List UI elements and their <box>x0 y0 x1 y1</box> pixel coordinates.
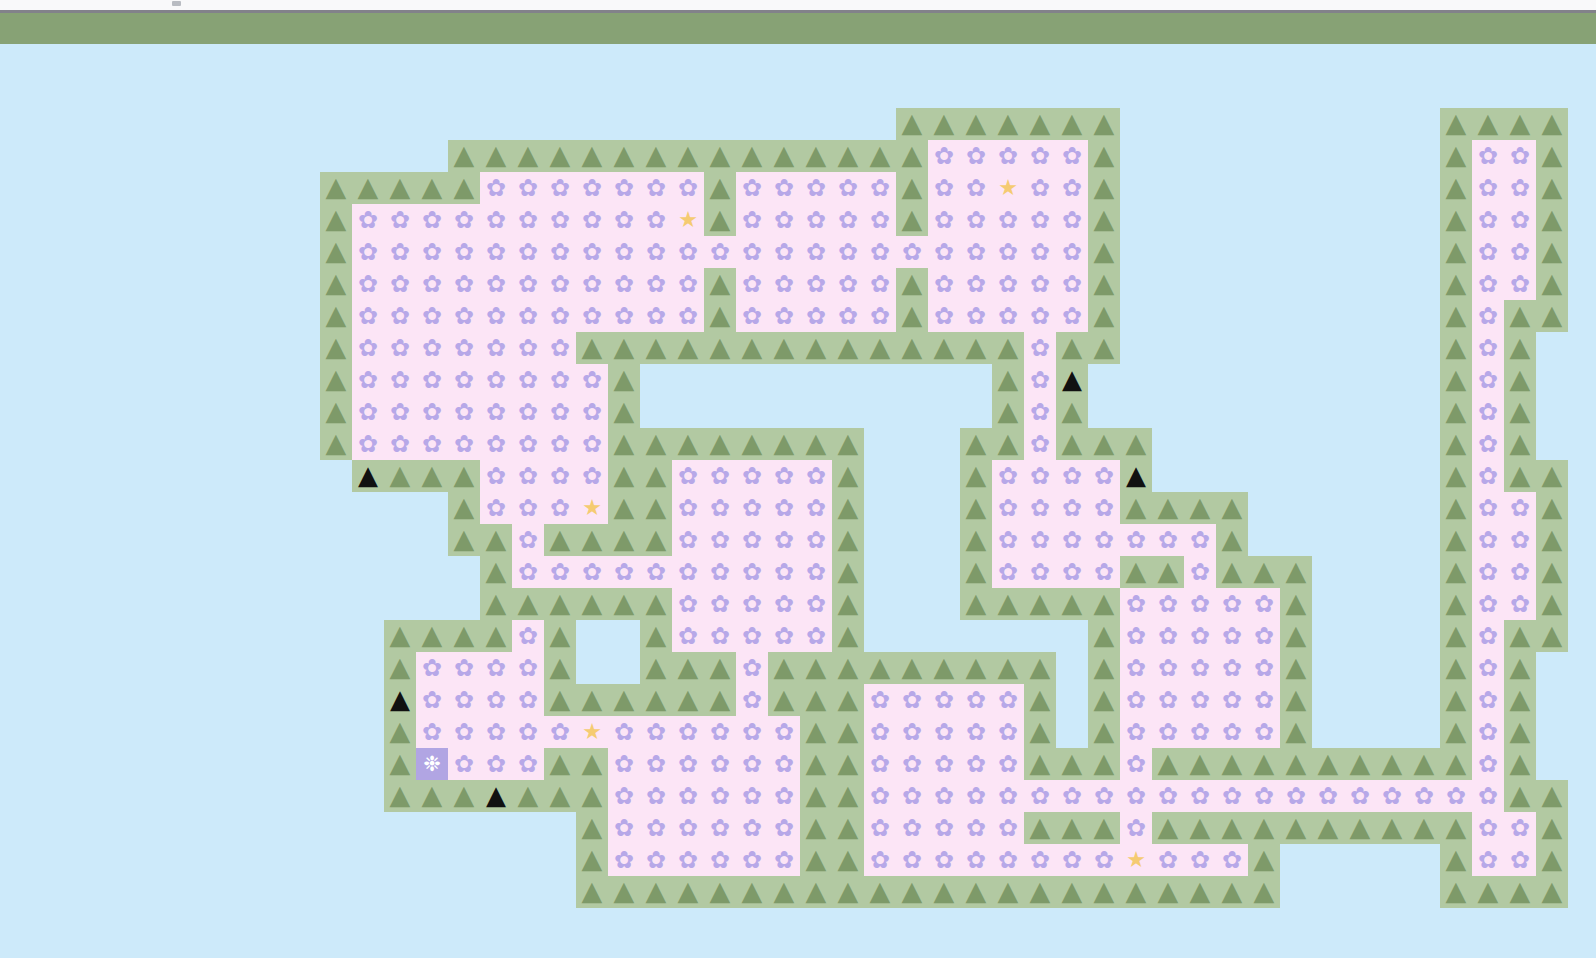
flower-icon: ✿ <box>998 560 1018 584</box>
flower-tile: ✿ <box>384 332 416 364</box>
tree-icon: ▲ <box>1094 749 1115 776</box>
flower-icon: ✿ <box>1190 528 1210 552</box>
flower-icon: ✿ <box>390 432 410 456</box>
flower-icon: ✿ <box>742 784 762 808</box>
tree-icon: ▲ <box>1158 749 1179 776</box>
flower-icon: ✿ <box>710 784 730 808</box>
flower-icon: ✿ <box>422 432 442 456</box>
flower-tile: ✿ <box>1376 780 1408 812</box>
star-icon: ★ <box>582 721 602 743</box>
flower-tile: ✿ <box>1056 460 1088 492</box>
tree-tile: ▲ <box>800 812 832 844</box>
flower-icon: ✿ <box>614 176 634 200</box>
black-triangle-tile: ▲ <box>1056 364 1088 396</box>
flower-icon: ✿ <box>454 208 474 232</box>
tree-tile: ▲ <box>1024 684 1056 716</box>
flower-icon: ✿ <box>934 784 954 808</box>
tree-icon: ▲ <box>1542 301 1563 328</box>
flower-icon: ✿ <box>422 208 442 232</box>
flower-tile: ✿ <box>1472 364 1504 396</box>
flower-tile: ✿ <box>1088 844 1120 876</box>
flower-tile: ✿ <box>480 716 512 748</box>
flower-tile: ✿ <box>800 236 832 268</box>
tree-icon: ▲ <box>902 301 923 328</box>
tree-icon: ▲ <box>1414 813 1435 840</box>
flower-icon: ✿ <box>1478 784 1498 808</box>
tree-tile: ▲ <box>704 332 736 364</box>
tree-tile: ▲ <box>928 332 960 364</box>
star-icon: ★ <box>582 497 602 519</box>
tree-icon: ▲ <box>486 557 507 584</box>
tree-tile: ▲ <box>1216 492 1248 524</box>
flower-icon: ✿ <box>422 368 442 392</box>
tree-tile: ▲ <box>480 524 512 556</box>
black-triangle-icon: ▲ <box>358 462 378 488</box>
flower-tile: ✿ <box>512 172 544 204</box>
tree-tile: ▲ <box>704 876 736 908</box>
tree-icon: ▲ <box>326 173 347 200</box>
tree-tile: ▲ <box>1440 396 1472 428</box>
flower-tile: ✿ <box>1248 716 1280 748</box>
flower-tile: ✿ <box>576 396 608 428</box>
flower-tile: ✿ <box>768 236 800 268</box>
flower-tile: ✿ <box>864 780 896 812</box>
tree-tile: ▲ <box>800 748 832 780</box>
tree-icon: ▲ <box>454 525 475 552</box>
tree-icon: ▲ <box>1062 429 1083 456</box>
flower-icon: ✿ <box>998 304 1018 328</box>
tree-tile: ▲ <box>1504 332 1536 364</box>
flower-icon: ✿ <box>678 848 698 872</box>
flower-icon: ✿ <box>1190 592 1210 616</box>
flower-icon: ✿ <box>870 688 890 712</box>
tree-tile: ▲ <box>384 716 416 748</box>
flower-tile: ✿ <box>960 300 992 332</box>
flower-tile: ✿ <box>1216 684 1248 716</box>
flower-icon: ✿ <box>358 304 378 328</box>
tree-tile: ▲ <box>672 876 704 908</box>
flower-icon: ✿ <box>998 272 1018 296</box>
flower-icon: ✿ <box>1254 688 1274 712</box>
flower-icon: ✿ <box>518 688 538 712</box>
tree-tile: ▲ <box>1504 364 1536 396</box>
tree-tile: ▲ <box>640 876 672 908</box>
flower-tile: ✿ <box>704 556 736 588</box>
tree-icon: ▲ <box>838 781 859 808</box>
flower-tile: ✿ <box>480 300 512 332</box>
tree-tile: ▲ <box>1440 716 1472 748</box>
tree-tile: ▲ <box>1440 364 1472 396</box>
flower-icon: ✿ <box>1062 176 1082 200</box>
tree-tile: ▲ <box>608 428 640 460</box>
tree-tile: ▲ <box>800 140 832 172</box>
flower-icon: ✿ <box>518 496 538 520</box>
flower-tile: ✿ <box>992 780 1024 812</box>
flower-icon: ✿ <box>422 400 442 424</box>
tree-icon: ▲ <box>1094 877 1115 904</box>
tree-tile: ▲ <box>992 652 1024 684</box>
tree-tile: ▲ <box>992 108 1024 140</box>
tree-tile: ▲ <box>1536 876 1568 908</box>
flower-tile: ✿ <box>928 172 960 204</box>
tree-icon: ▲ <box>454 621 475 648</box>
tree-icon: ▲ <box>838 685 859 712</box>
tree-tile: ▲ <box>1536 524 1568 556</box>
flower-icon: ✿ <box>486 240 506 264</box>
tree-icon: ▲ <box>1542 141 1563 168</box>
tree-tile: ▲ <box>1536 172 1568 204</box>
flower-tile: ✿ <box>1216 620 1248 652</box>
tree-tile: ▲ <box>1536 812 1568 844</box>
star-icon: ★ <box>998 177 1018 199</box>
flower-tile: ✿ <box>736 268 768 300</box>
star-tile: ★ <box>576 716 608 748</box>
tree-icon: ▲ <box>806 781 827 808</box>
flower-icon: ✿ <box>486 496 506 520</box>
tree-icon: ▲ <box>806 685 827 712</box>
flower-tile: ✿ <box>768 300 800 332</box>
flower-tile: ✿ <box>352 396 384 428</box>
flower-tile: ✿ <box>800 556 832 588</box>
flower-tile: ✿ <box>1504 844 1536 876</box>
tree-icon: ▲ <box>358 173 379 200</box>
flower-tile: ✿ <box>1120 716 1152 748</box>
flower-icon: ✿ <box>1190 624 1210 648</box>
flower-tile: ✿ <box>1472 812 1504 844</box>
tree-tile: ▲ <box>1152 876 1184 908</box>
flower-icon: ✿ <box>710 816 730 840</box>
tree-tile: ▲ <box>1088 812 1120 844</box>
tree-tile: ▲ <box>1248 556 1280 588</box>
tree-icon: ▲ <box>1510 333 1531 360</box>
flower-icon: ✿ <box>774 528 794 552</box>
flower-tile: ✿ <box>768 460 800 492</box>
flower-tile: ✿ <box>384 364 416 396</box>
tree-tile: ▲ <box>1504 300 1536 332</box>
tree-tile: ▲ <box>576 876 608 908</box>
flower-tile: ✿ <box>1504 556 1536 588</box>
tree-tile: ▲ <box>960 652 992 684</box>
flower-tile: ✿ <box>768 780 800 812</box>
flower-tile: ✿ <box>416 716 448 748</box>
black-triangle-icon: ▲ <box>1126 462 1146 488</box>
flower-icon: ✿ <box>998 752 1018 776</box>
flower-tile: ✿ <box>384 204 416 236</box>
flower-tile: ✿ <box>1248 684 1280 716</box>
flower-tile: ✿ <box>736 716 768 748</box>
flower-tile: ✿ <box>1024 460 1056 492</box>
flower-icon: ✿ <box>1126 656 1146 680</box>
star-tile: ★ <box>992 172 1024 204</box>
tree-tile: ▲ <box>608 364 640 396</box>
flower-tile: ✿ <box>640 268 672 300</box>
flower-tile: ✿ <box>1504 812 1536 844</box>
flower-icon: ✿ <box>614 272 634 296</box>
tree-icon: ▲ <box>806 333 827 360</box>
tree-icon: ▲ <box>550 141 571 168</box>
flower-icon: ✿ <box>998 720 1018 744</box>
flower-tile: ✿ <box>544 492 576 524</box>
tree-icon: ▲ <box>550 589 571 616</box>
tree-icon: ▲ <box>550 781 571 808</box>
tree-icon: ▲ <box>582 813 603 840</box>
game-board[interactable]: ▲▲▲▲▲▲▲▲▲▲▲▲▲▲▲▲▲▲▲▲▲▲▲▲▲▲✿✿✿✿✿▲▲✿✿▲▲▲▲▲… <box>0 44 1596 958</box>
tree-icon: ▲ <box>1510 365 1531 392</box>
flower-tile: ✿ <box>1472 620 1504 652</box>
flower-icon: ✿ <box>870 752 890 776</box>
flower-tile: ✿ <box>736 460 768 492</box>
tree-tile: ▲ <box>1280 556 1312 588</box>
player-tile[interactable]: ❉ <box>416 748 448 780</box>
tree-tile: ▲ <box>992 588 1024 620</box>
flower-tile: ✿ <box>544 460 576 492</box>
flower-icon: ✿ <box>1478 592 1498 616</box>
flower-tile: ✿ <box>896 236 928 268</box>
tree-tile: ▲ <box>800 684 832 716</box>
tree-tile: ▲ <box>1536 588 1568 620</box>
flower-icon: ✿ <box>742 208 762 232</box>
flower-icon: ✿ <box>934 816 954 840</box>
flower-icon: ✿ <box>518 304 538 328</box>
flower-tile: ✿ <box>1184 524 1216 556</box>
flower-icon: ✿ <box>1158 848 1178 872</box>
tree-icon: ▲ <box>1510 461 1531 488</box>
flower-tile: ✿ <box>1504 268 1536 300</box>
tree-tile: ▲ <box>1280 684 1312 716</box>
flower-icon: ✿ <box>390 368 410 392</box>
tree-tile: ▲ <box>320 332 352 364</box>
flower-tile: ✿ <box>1024 140 1056 172</box>
flower-icon: ✿ <box>870 208 890 232</box>
flower-tile: ✿ <box>1248 620 1280 652</box>
tree-tile: ▲ <box>1408 812 1440 844</box>
flower-tile: ✿ <box>1472 524 1504 556</box>
tree-tile: ▲ <box>928 108 960 140</box>
tree-tile: ▲ <box>800 716 832 748</box>
tree-icon: ▲ <box>1030 813 1051 840</box>
flower-tile: ✿ <box>800 268 832 300</box>
flower-tile: ✿ <box>1216 716 1248 748</box>
flower-icon: ✿ <box>934 848 954 872</box>
tree-tile: ▲ <box>608 396 640 428</box>
flower-icon: ✿ <box>1062 848 1082 872</box>
flower-tile: ✿ <box>1024 556 1056 588</box>
flower-tile: ✿ <box>928 140 960 172</box>
flower-tile: ✿ <box>704 492 736 524</box>
flower-tile: ✿ <box>672 588 704 620</box>
flower-tile: ✿ <box>384 300 416 332</box>
tree-tile: ▲ <box>1504 876 1536 908</box>
black-triangle-tile: ▲ <box>352 460 384 492</box>
tree-tile: ▲ <box>448 492 480 524</box>
flower-icon: ✿ <box>582 176 602 200</box>
flower-tile: ✿ <box>448 748 480 780</box>
flower-tile: ✿ <box>512 428 544 460</box>
flower-icon: ✿ <box>582 208 602 232</box>
tree-tile: ▲ <box>800 876 832 908</box>
tree-icon: ▲ <box>390 749 411 776</box>
flower-tile: ✿ <box>608 204 640 236</box>
tree-icon: ▲ <box>870 141 891 168</box>
flower-icon: ✿ <box>518 624 538 648</box>
tree-tile: ▲ <box>1088 140 1120 172</box>
flower-icon: ✿ <box>1510 592 1530 616</box>
tree-tile: ▲ <box>992 364 1024 396</box>
tree-tile: ▲ <box>704 204 736 236</box>
tree-tile: ▲ <box>480 556 512 588</box>
flower-tile: ✿ <box>1152 588 1184 620</box>
tree-icon: ▲ <box>934 333 955 360</box>
tree-tile: ▲ <box>544 780 576 812</box>
tree-icon: ▲ <box>838 621 859 648</box>
flower-tile: ✿ <box>672 460 704 492</box>
flower-icon: ✿ <box>934 752 954 776</box>
flower-tile: ✿ <box>736 556 768 588</box>
tree-tile: ▲ <box>832 876 864 908</box>
tree-tile: ▲ <box>1504 748 1536 780</box>
tree-icon: ▲ <box>774 429 795 456</box>
flower-tile: ✿ <box>352 332 384 364</box>
flower-icon: ✿ <box>710 848 730 872</box>
flower-tile: ✿ <box>1472 460 1504 492</box>
black-triangle-tile: ▲ <box>384 684 416 716</box>
flower-tile: ✿ <box>640 236 672 268</box>
flower-icon: ✿ <box>1510 528 1530 552</box>
tree-icon: ▲ <box>678 685 699 712</box>
tree-icon: ▲ <box>1254 845 1275 872</box>
tree-tile: ▲ <box>1088 268 1120 300</box>
flower-icon: ✿ <box>550 240 570 264</box>
tree-tile: ▲ <box>960 556 992 588</box>
tree-tile: ▲ <box>576 844 608 876</box>
tree-tile: ▲ <box>640 428 672 460</box>
tree-tile: ▲ <box>1440 300 1472 332</box>
flower-icon: ✿ <box>518 656 538 680</box>
flower-icon: ✿ <box>582 272 602 296</box>
flower-icon: ✿ <box>1222 784 1242 808</box>
flower-icon: ✿ <box>1158 784 1178 808</box>
tree-tile: ▲ <box>1376 812 1408 844</box>
tree-tile: ▲ <box>672 332 704 364</box>
flower-icon: ✿ <box>678 176 698 200</box>
tree-tile: ▲ <box>320 172 352 204</box>
flower-tile: ✿ <box>928 204 960 236</box>
flower-icon: ✿ <box>966 752 986 776</box>
flower-tile: ✿ <box>704 588 736 620</box>
tree-tile: ▲ <box>960 332 992 364</box>
flower-tile: ✿ <box>896 844 928 876</box>
flower-icon: ✿ <box>742 720 762 744</box>
flower-icon: ✿ <box>422 304 442 328</box>
flower-icon: ✿ <box>678 752 698 776</box>
flower-tile: ✿ <box>704 780 736 812</box>
tree-icon: ▲ <box>1382 813 1403 840</box>
flower-tile: ✿ <box>640 204 672 236</box>
flower-icon: ✿ <box>1190 560 1210 584</box>
flower-tile: ✿ <box>640 556 672 588</box>
tree-icon: ▲ <box>646 333 667 360</box>
flower-tile: ✿ <box>576 556 608 588</box>
flower-tile: ✿ <box>1280 780 1312 812</box>
tree-icon: ▲ <box>550 749 571 776</box>
flower-icon: ✿ <box>518 272 538 296</box>
flower-icon: ✿ <box>966 272 986 296</box>
tree-tile: ▲ <box>1504 716 1536 748</box>
flower-icon: ✿ <box>454 272 474 296</box>
tree-tile: ▲ <box>832 492 864 524</box>
tree-tile: ▲ <box>832 332 864 364</box>
tree-icon: ▲ <box>1094 237 1115 264</box>
flower-icon: ✿ <box>774 272 794 296</box>
tree-icon: ▲ <box>1542 173 1563 200</box>
tree-icon: ▲ <box>1542 557 1563 584</box>
flower-tile: ✿ <box>1184 588 1216 620</box>
tree-tile: ▲ <box>704 652 736 684</box>
flower-tile: ✿ <box>1184 716 1216 748</box>
tree-tile: ▲ <box>608 524 640 556</box>
flower-tile: ✿ <box>1056 140 1088 172</box>
tree-icon: ▲ <box>998 877 1019 904</box>
flower-icon: ✿ <box>1062 144 1082 168</box>
flower-icon: ✿ <box>710 592 730 616</box>
tree-icon: ▲ <box>1094 205 1115 232</box>
flower-icon: ✿ <box>1062 528 1082 552</box>
tree-icon: ▲ <box>1190 877 1211 904</box>
tree-icon: ▲ <box>870 877 891 904</box>
tree-icon: ▲ <box>710 205 731 232</box>
flower-tile: ✿ <box>448 684 480 716</box>
tree-icon: ▲ <box>1094 621 1115 648</box>
tree-icon: ▲ <box>614 685 635 712</box>
tree-tile: ▲ <box>768 428 800 460</box>
flower-icon: ✿ <box>742 848 762 872</box>
flower-tile: ✿ <box>1024 780 1056 812</box>
flower-tile: ✿ <box>416 364 448 396</box>
flower-icon: ✿ <box>1478 464 1498 488</box>
flower-tile: ✿ <box>544 300 576 332</box>
flower-tile: ✿ <box>992 204 1024 236</box>
tree-icon: ▲ <box>1062 109 1083 136</box>
tree-tile: ▲ <box>1440 844 1472 876</box>
flower-icon: ✿ <box>646 752 666 776</box>
flower-icon: ✿ <box>614 240 634 264</box>
tree-tile: ▲ <box>864 652 896 684</box>
player-flower-icon: ❉ <box>423 754 441 775</box>
tree-tile: ▲ <box>448 524 480 556</box>
tree-tile: ▲ <box>768 684 800 716</box>
tree-icon: ▲ <box>1510 397 1531 424</box>
flower-tile: ✿ <box>1088 556 1120 588</box>
flower-icon: ✿ <box>1126 688 1146 712</box>
flower-icon: ✿ <box>454 432 474 456</box>
flower-tile: ✿ <box>1184 684 1216 716</box>
flower-icon: ✿ <box>1030 144 1050 168</box>
tree-tile: ▲ <box>1056 396 1088 428</box>
tree-tile: ▲ <box>1152 492 1184 524</box>
flower-tile: ✿ <box>768 172 800 204</box>
flower-icon: ✿ <box>806 496 826 520</box>
tree-tile: ▲ <box>1056 876 1088 908</box>
tree-tile: ▲ <box>1504 460 1536 492</box>
flower-tile: ✿ <box>480 268 512 300</box>
flower-icon: ✿ <box>486 688 506 712</box>
tree-icon: ▲ <box>678 141 699 168</box>
black-triangle-icon: ▲ <box>390 686 410 712</box>
flower-tile: ✿ <box>672 780 704 812</box>
flower-icon: ✿ <box>998 688 1018 712</box>
flower-tile: ✿ <box>1184 780 1216 812</box>
tree-tile: ▲ <box>992 396 1024 428</box>
